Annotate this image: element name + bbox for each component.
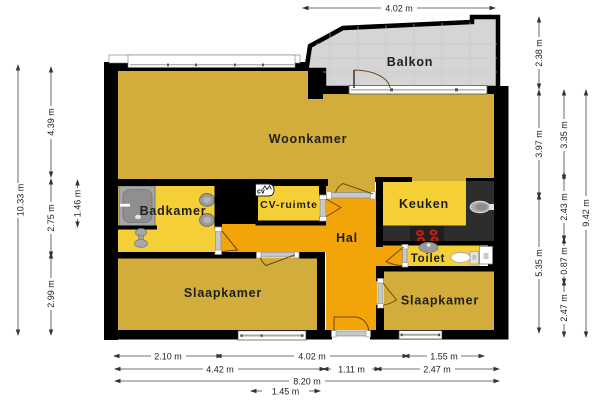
svg-text:1.55 m: 1.55 m — [430, 352, 458, 362]
svg-text:Toilet: Toilet — [411, 253, 446, 265]
svg-text:4.42 m: 4.42 m — [206, 365, 234, 375]
svg-text:Slaapkamer: Slaapkamer — [401, 294, 479, 308]
svg-text:Keuken: Keuken — [399, 197, 449, 211]
svg-text:2.99 m: 2.99 m — [46, 280, 56, 308]
svg-text:Woonkamer: Woonkamer — [269, 132, 348, 146]
svg-text:4.02 m: 4.02 m — [298, 352, 326, 362]
svg-text:Badkamer: Badkamer — [140, 204, 207, 218]
svg-text:1.11 m: 1.11 m — [338, 365, 365, 375]
svg-text:2.43 m: 2.43 m — [559, 193, 569, 221]
svg-text:cv: cv — [257, 189, 265, 196]
svg-text:Hal: Hal — [336, 231, 358, 245]
svg-text:3.97 m: 3.97 m — [534, 130, 544, 158]
svg-text:4.02 m: 4.02 m — [385, 4, 413, 14]
svg-text:Slaapkamer: Slaapkamer — [184, 286, 262, 300]
svg-text:10.33 m: 10.33 m — [15, 184, 25, 217]
svg-text:2.38 m: 2.38 m — [534, 39, 544, 67]
svg-text:2.10 m: 2.10 m — [154, 352, 182, 362]
svg-text:8.20 m: 8.20 m — [293, 377, 321, 387]
svg-text:Balkon: Balkon — [387, 55, 433, 69]
svg-text:2.75 m: 2.75 m — [46, 204, 56, 232]
svg-text:5.35 m: 5.35 m — [534, 249, 544, 277]
svg-text:0.87 m: 0.87 m — [559, 247, 569, 275]
svg-text:4.39 m: 4.39 m — [46, 108, 56, 136]
svg-text:CV-ruimte: CV-ruimte — [260, 199, 318, 211]
svg-text:3.35 m: 3.35 m — [559, 121, 569, 149]
svg-text:2.47 m: 2.47 m — [423, 365, 451, 375]
svg-text:2.47 m: 2.47 m — [559, 294, 569, 322]
svg-text:1.46 m: 1.46 m — [73, 190, 83, 218]
svg-text:9.42 m: 9.42 m — [581, 199, 591, 227]
svg-text:1.45 m: 1.45 m — [272, 387, 300, 397]
